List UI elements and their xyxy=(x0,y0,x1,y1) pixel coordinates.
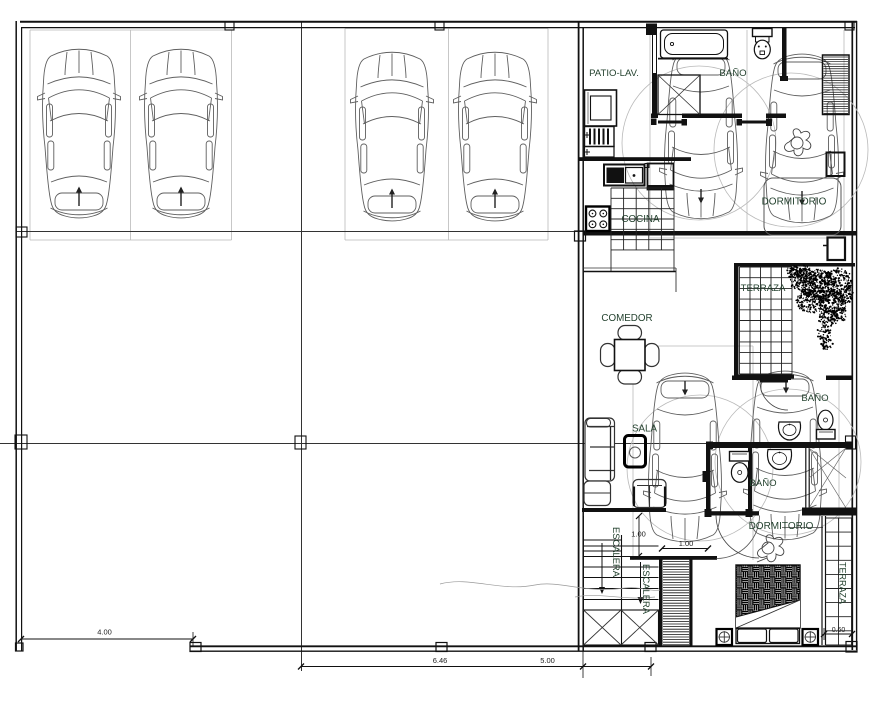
svg-text:1.00: 1.00 xyxy=(631,529,646,538)
svg-text:COCINA: COCINA xyxy=(621,214,660,225)
svg-text:4.00: 4.00 xyxy=(97,627,112,636)
svg-text:6.46: 6.46 xyxy=(433,656,448,665)
svg-text:BAÑO: BAÑO xyxy=(719,68,746,79)
svg-text:PATIO-LAV.: PATIO-LAV. xyxy=(589,68,639,79)
svg-text:TERRAZA: TERRAZA xyxy=(741,283,786,294)
svg-text:1.00: 1.00 xyxy=(679,539,694,548)
svg-text:SALA: SALA xyxy=(632,424,658,435)
svg-text:ESCALERA: ESCALERA xyxy=(641,564,652,615)
svg-text:0.60: 0.60 xyxy=(832,627,846,634)
svg-text:ESCALERA: ESCALERA xyxy=(611,527,622,578)
svg-text:BAÑO: BAÑO xyxy=(801,393,828,404)
svg-text:COMEDOR: COMEDOR xyxy=(601,313,652,324)
svg-text:5.00: 5.00 xyxy=(540,656,555,665)
svg-text:TERRAZA: TERRAZA xyxy=(838,562,848,604)
svg-text:DORMITORIO: DORMITORIO xyxy=(762,197,827,208)
svg-text:DORMITORIO: DORMITORIO xyxy=(749,521,814,532)
svg-text:BAÑO: BAÑO xyxy=(749,478,776,489)
